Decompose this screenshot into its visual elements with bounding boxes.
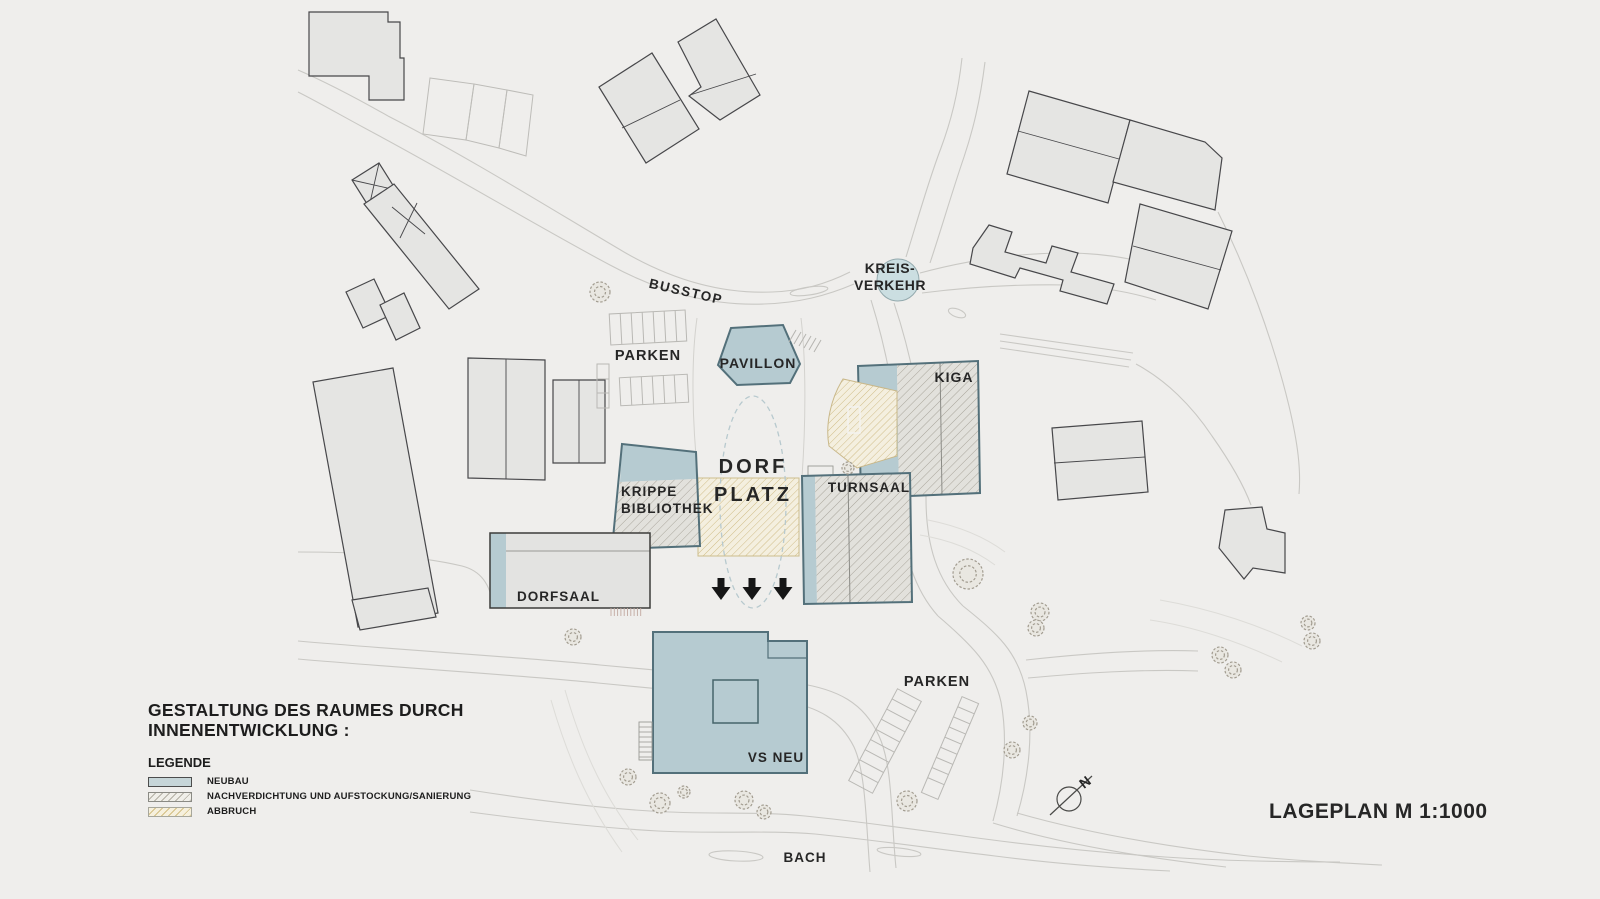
tree-icon: [590, 282, 610, 302]
legend-swatch-sanierung: [148, 792, 192, 802]
faint-building: [499, 90, 533, 156]
tree-icon: [620, 769, 636, 785]
label-busstop: BUSSTOP: [648, 276, 725, 308]
legend-swatch-neubau: [148, 777, 192, 787]
tree-icon: [1301, 616, 1315, 630]
label-scale: LAGEPLAN M 1:1000: [1269, 800, 1488, 823]
label-pavillon: PAVILLON: [720, 355, 797, 371]
legend-row-neubau: NEUBAU: [148, 774, 471, 789]
road-line: [1136, 364, 1251, 505]
legend-label-neubau: NEUBAU: [207, 776, 249, 787]
legend-row-sanierung: NACHVERDICHTUNG UND AUFSTOCKUNG/SANIERUN…: [148, 789, 471, 804]
dorfsaal-neubau-strip: [490, 533, 506, 608]
tree-icon: [1225, 662, 1241, 678]
tree-icon: [1004, 742, 1020, 758]
tree-icon: [757, 805, 771, 819]
legend: NEUBAU NACHVERDICHTUNG UND AUFSTOCKUNG/S…: [148, 774, 471, 819]
road-line: [938, 616, 1004, 821]
site-plan-svg: BUSSTOPPARKENPAVILLONKREIS-VERKEHRKIGATU…: [0, 0, 1600, 899]
church-nave: [364, 184, 479, 309]
label-krippe-line2: BIBLIOTHEK: [621, 501, 714, 516]
road-line: [796, 683, 896, 868]
label-kreis-line1: KREIS-: [865, 260, 915, 276]
title-block: GESTALTUNG DES RAUMES DURCH INNENENTWICK…: [148, 700, 464, 740]
context-building-right-mid: [1052, 421, 1148, 500]
context-building-topright-3: [1125, 204, 1232, 309]
legend-heading: LEGENDE: [148, 755, 211, 770]
contour-line: [928, 520, 1005, 552]
arrow-down-icon: [712, 578, 731, 600]
tree-icon: [565, 629, 581, 645]
tree-icon: [1304, 633, 1320, 649]
contour-line: [920, 535, 995, 565]
arrow-down-icon: [774, 578, 793, 600]
tree-icon: [897, 791, 917, 811]
traffic-island-small: [947, 306, 967, 320]
vsneu-stairs: [639, 722, 652, 760]
context-building-topright-1: [1007, 91, 1130, 203]
tree-icon: [1028, 620, 1044, 636]
tree-icon: [735, 791, 753, 809]
parking-row-top-1: [609, 310, 687, 345]
contour-line: [1160, 600, 1302, 646]
road-line: [906, 58, 962, 257]
tree-icon: [1212, 647, 1228, 663]
stream-island: [709, 850, 763, 863]
arrow-down-icon: [743, 578, 762, 600]
context-building-topmid-b: [678, 19, 760, 120]
label-vs-neu: VS NEU: [748, 750, 804, 765]
context-building-stepped: [970, 225, 1114, 304]
label-parken-top: PARKEN: [615, 348, 681, 364]
direction-arrows: [712, 578, 793, 600]
legend-swatch-abbruch: [148, 807, 192, 817]
label-parken-bottom: PARKEN: [904, 674, 970, 690]
legend-row-abbruch: ABBRUCH: [148, 804, 471, 819]
tree-icon: [650, 793, 670, 813]
context-building-topmid-a: [599, 53, 699, 163]
tree-icon: [1023, 716, 1037, 730]
road-line: [298, 92, 372, 132]
legend-label-sanierung: NACHVERDICHTUNG UND AUFSTOCKUNG/SANIERUN…: [207, 791, 471, 802]
road-line: [930, 62, 985, 263]
context-building-topleft: [309, 12, 404, 100]
label-turnsaal: TURNSAAL: [828, 480, 910, 495]
label-krippe-line1: KRIPPE: [621, 484, 677, 499]
contour-line: [551, 700, 622, 852]
label-bach: BACH: [784, 850, 827, 865]
label-kiga: KIGA: [935, 369, 974, 385]
road-line: [1028, 670, 1198, 678]
krippe-neubau-part: [620, 444, 697, 482]
parking-row-bottom-1: [849, 689, 922, 794]
tree-icon: [1031, 603, 1049, 621]
faint-structures: [423, 78, 533, 156]
contour-line: [565, 690, 638, 840]
abbruch-area: [828, 379, 897, 468]
stream-island-2: [877, 846, 922, 859]
tree-icon: [678, 786, 690, 798]
page-title-line2: INNENENTWICKLUNG :: [148, 720, 464, 740]
label-kreis-line2: VERKEHR: [854, 277, 926, 293]
context-house-right: [1219, 507, 1285, 579]
plan-buildings: [490, 259, 1092, 815]
parking-row-bottom-2: [921, 697, 978, 800]
road-line: [963, 606, 1030, 816]
site-plan-canvas: BUSSTOPPARKENPAVILLONKREIS-VERKEHRKIGATU…: [0, 0, 1600, 899]
page-title-line1: GESTALTUNG DES RAUMES DURCH: [148, 700, 464, 720]
faint-building: [466, 84, 507, 148]
tree-icon: [842, 462, 854, 474]
label-platz: PLATZ: [714, 484, 792, 506]
legend-label-abbruch: ABBRUCH: [207, 806, 256, 817]
context-building-left-big: [313, 368, 438, 627]
detail-lines: [611, 608, 652, 757]
road-line: [922, 285, 1156, 300]
tree-icon: [953, 559, 983, 589]
label-dorf: DORF: [719, 456, 788, 478]
road-line: [1218, 212, 1300, 494]
faint-building: [423, 78, 474, 140]
road-line: [1026, 651, 1198, 660]
context-building-topright-2: [1113, 120, 1222, 210]
parking-row-top-2: [619, 374, 688, 406]
context-building-left-mid: [468, 358, 545, 480]
context-building-small: [380, 293, 420, 340]
label-dorfsaal: DORFSAAL: [517, 589, 600, 604]
